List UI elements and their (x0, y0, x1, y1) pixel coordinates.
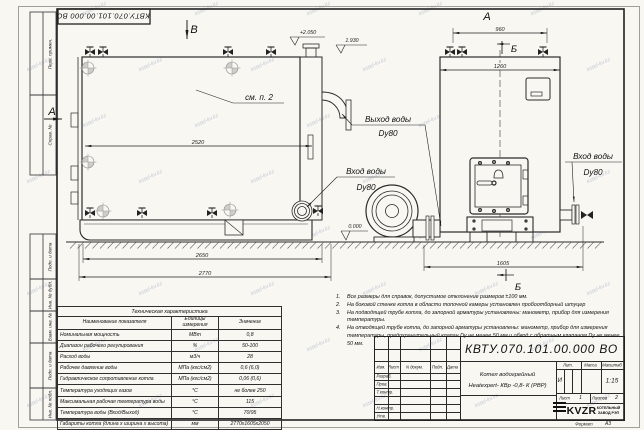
tb-scale-value: 1:15 (606, 377, 619, 384)
note-item: 1.Все размеры для справок, допустимое от… (336, 294, 624, 302)
tech-table-cell: Номинальная мощность (58, 330, 172, 341)
note-item: 3.На подводящей трубе котла, до запорной… (336, 310, 624, 326)
valve-icon (445, 47, 455, 57)
tech-table-row: Диапазон рабочего регулирования%50-100 (58, 341, 282, 352)
kvzr-logo-text: KVZR (567, 405, 597, 417)
tech-table-row: Рабочее давление водыМПа (кгс/см2)0,6 (6… (58, 363, 282, 374)
tech-table-cell: 0,6 (6,0) (219, 363, 282, 374)
tb-col-data: Дата (447, 364, 458, 369)
valve-icon (98, 47, 108, 57)
tb-col-izm: Изм. (377, 364, 386, 369)
tech-table-title: Техническая характеристика (58, 307, 282, 317)
tech-table-row: Габариты котла (длина х ширина х высота)… (58, 418, 282, 429)
ash-box (467, 217, 533, 242)
dim-2520: 2520 (191, 140, 205, 146)
margin-label: Инв. № подл. (47, 390, 52, 419)
margin-label: Подп. и дата (47, 351, 52, 380)
datum-target-icon (222, 202, 239, 219)
tb-lit-value: И (558, 378, 562, 384)
product-name-line1: Котел водогрейный (480, 372, 535, 378)
tb-row-utv: Утв. (377, 413, 387, 418)
inlet-label-right: Вход воды Dy80 (565, 152, 622, 202)
tech-table-header: Единицы измерения (172, 317, 219, 330)
note-item: 2.На боковой стенке котла в области топо… (336, 302, 624, 310)
format-label: Формат (575, 422, 592, 427)
tb-sheets-label: Листов (592, 395, 607, 400)
tb-col-list: Лист (388, 364, 399, 369)
drain-valve-icon (207, 208, 217, 218)
valve-icon (266, 47, 276, 57)
tech-table-row: Максимальная рабочая температура воды°С1… (58, 396, 282, 407)
tech-table-cell: 0,8 (219, 330, 282, 341)
furnace-door (470, 158, 528, 214)
view-label-a-side: А (47, 106, 55, 118)
title-block-designation: КВТУ.070.101.00.000 ВО (465, 342, 618, 356)
tb-lit-label: Лит. (563, 362, 573, 367)
margin-label: Перв. примен. (47, 38, 52, 69)
boiler-front-view (366, 47, 593, 242)
tech-table-cell: Температура уходящих газов (58, 385, 172, 396)
tech-table-cell: Температура воды (Вход/Выход) (58, 407, 172, 418)
tb-row-prov: Пров. (377, 382, 388, 387)
svg-text:см. п. 2: см. п. 2 (245, 93, 273, 102)
svg-text:Вход воды: Вход воды (346, 167, 386, 176)
tb-sheets-value: 2 (615, 395, 618, 401)
tech-table-cell: Максимальная рабочая температура воды (58, 396, 172, 407)
tech-table-cell: Гидравлическое сопротивление котла (58, 374, 172, 385)
valve-icon (223, 47, 233, 57)
tb-mass-label: Масса (584, 362, 596, 367)
tech-table-cell: не более 250 (219, 385, 282, 396)
tech-table-cell: Расход воды (58, 352, 172, 363)
tb-row-tkontr: Т.контр. (377, 390, 394, 395)
section-label-b-top: Б (511, 44, 517, 55)
tech-characteristics-table: Техническая характеристика Наименование … (57, 306, 282, 430)
margin-label: Подп. и дата (47, 242, 52, 271)
drain-valve-icon (85, 208, 95, 218)
valve-icon (538, 47, 548, 57)
elevation-mid: 1.930 (345, 38, 358, 44)
tb-scale-label: Масштаб (602, 362, 622, 367)
tech-table-cell: % (172, 341, 219, 352)
dim-2650: 2650 (195, 253, 209, 259)
svg-text:Dy80: Dy80 (583, 168, 603, 177)
tech-table-cell: °С (172, 396, 219, 407)
tb-sheet-value: 1 (579, 395, 582, 401)
view-label-b: В (190, 24, 197, 36)
tech-table-header: Наименование показателя (58, 317, 172, 330)
inlet-pipe-right (560, 205, 593, 224)
tech-table-cell: МПа (кгс/см2) (172, 374, 219, 385)
tech-table-cell: 28 (219, 352, 282, 363)
svg-text:Dy80: Dy80 (378, 129, 398, 138)
dim-1605: 1605 (497, 261, 510, 267)
title-block: КВТУ.070.101.00.000 ВО Изм. Лист N докум… (374, 336, 625, 421)
boiler-side-view (71, 44, 351, 240)
tb-col-podp: Подп. (432, 364, 443, 369)
tech-table-cell: 0,06 (0,6) (219, 374, 282, 385)
tb-col-ndokum: N докум. (406, 364, 423, 369)
dim-960: 960 (495, 27, 505, 33)
tech-table-cell: Габариты котла (длина х ширина х высота) (58, 418, 172, 429)
tech-table-cell: 2770х1605х2050 (219, 418, 282, 429)
water-inlet-flange (292, 201, 312, 221)
tech-table-cell: мм (172, 418, 219, 429)
tech-table-row: Расход водым3/ч28 (58, 352, 282, 363)
dim-2770: 2770 (198, 271, 212, 277)
product-name-line2: Heatexpert- КВр -0,8- К (РВР) (468, 383, 546, 389)
valve-icon (457, 47, 467, 57)
datum-target-icon (95, 203, 112, 220)
tb-row-razrab: Разраб. (377, 374, 392, 379)
tech-table-row: Температура уходящих газов°Сне более 250 (58, 385, 282, 396)
drawing-sheet: kotel-kv.kzkotel-kv.kzkotel-kv.kzkotel-k… (0, 0, 644, 430)
svg-text:Выход воды: Выход воды (365, 115, 411, 124)
valve-icon (85, 47, 95, 57)
drain-valve-icon (137, 208, 147, 218)
dim-1260: 1260 (494, 64, 507, 70)
tech-table-cell: Диапазон рабочего регулирования (58, 341, 172, 352)
tech-table-cell: Рабочее давление воды (58, 363, 172, 374)
elevation-top: +2.050 (300, 30, 316, 36)
datum-target-icon (224, 60, 241, 77)
tech-table-row: Номинальная мощностьМВт0,8 (58, 330, 282, 341)
svg-text:Dy80: Dy80 (356, 183, 376, 192)
kvzr-logo-sub2: ЗАВОД РЭП (598, 411, 619, 415)
tech-table-cell: °С (172, 385, 219, 396)
elevation-zero: 0.000 (348, 224, 361, 230)
section-label-b-bottom: Б (515, 282, 521, 293)
svg-text:Вход воды: Вход воды (573, 152, 613, 161)
top-stamp-designation: КВТУ.070.101.00.000 ВО (56, 12, 149, 21)
tech-table-header: Значение (219, 317, 282, 330)
tech-table-cell: 70/95 (219, 407, 282, 418)
see-item-annotation: см. п. 2 (196, 90, 284, 103)
blower-fan (366, 185, 440, 242)
base-skid (80, 220, 312, 240)
view-label-a-top: А (482, 11, 490, 23)
ground-line (66, 242, 604, 249)
margin-label: Справ. № (47, 125, 52, 146)
tech-table-row: Гидравлическое сопротивление котлаМПа (к… (58, 374, 282, 385)
tech-table-cell: МПа (кгс/см2) (172, 363, 219, 374)
tech-table-cell: МВт (172, 330, 219, 341)
kvzr-logo-sub1: КОТЕЛЬНЫЙ (597, 406, 620, 410)
tech-table-cell: °С (172, 407, 219, 418)
tb-sheet-label: Лист (559, 395, 570, 400)
kvzr-logo-icon (553, 402, 566, 413)
water-outlet-elbow (308, 92, 351, 159)
tb-row-nkontr: Н.контр. (377, 405, 395, 410)
format-value: А3 (605, 421, 611, 427)
tech-table-cell: 115 (219, 396, 282, 407)
margin-label: Взам. инв. № (47, 313, 52, 341)
tech-table-cell: м3/ч (172, 352, 219, 363)
margin-label: Инв. № дубл. (47, 281, 52, 309)
tech-table-row: Температура воды (Вход/Выход)°С70/95 (58, 407, 282, 418)
tech-table-cell: 50-100 (219, 341, 282, 352)
